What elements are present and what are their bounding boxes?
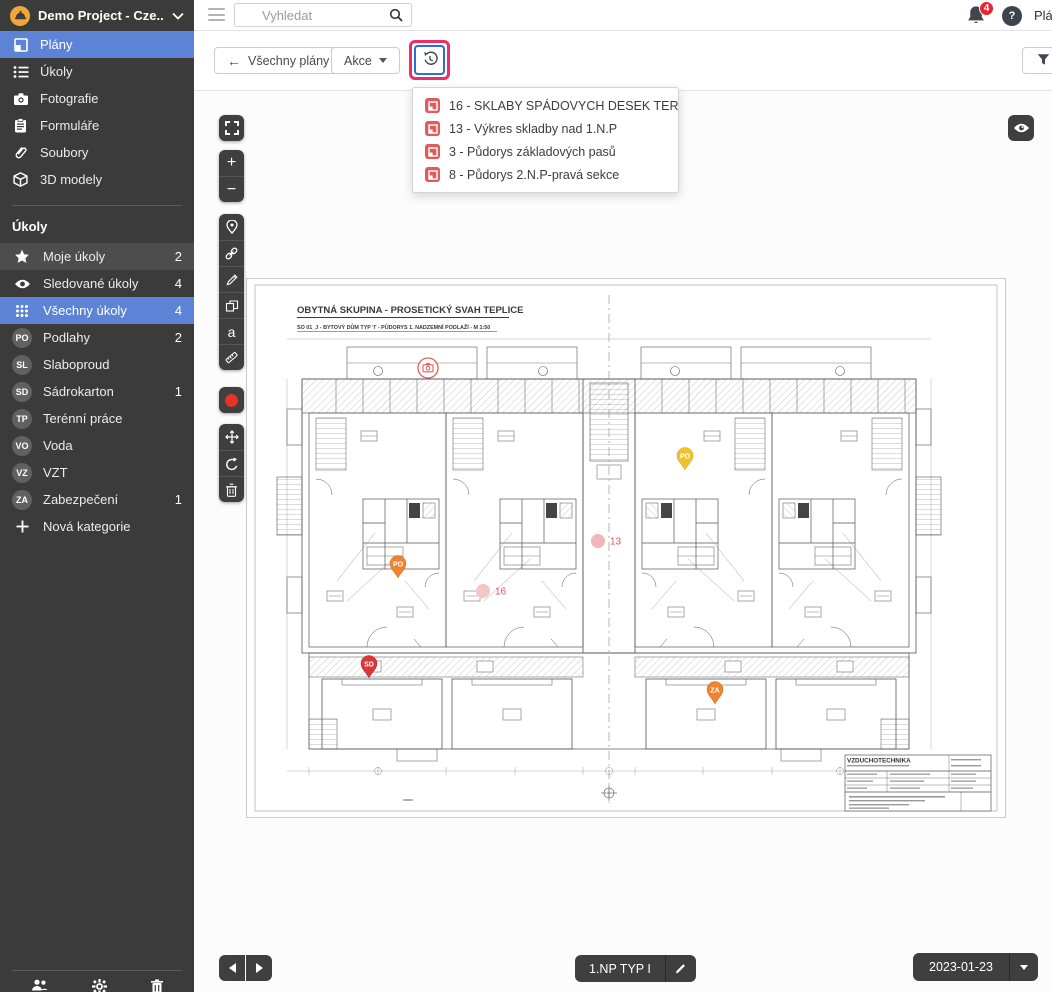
actions-dropdown-button[interactable]: Akce (331, 47, 400, 74)
fullscreen-icon (225, 121, 239, 135)
project-name: Demo Project - Cze... (38, 8, 164, 23)
task-pin-po-yellow[interactable]: PO (677, 448, 693, 471)
chevron-down-icon (172, 7, 184, 25)
plan-history-button[interactable] (414, 45, 445, 75)
record-button[interactable] (219, 387, 244, 413)
arrow-right-icon (256, 963, 263, 973)
task-pin-po-orange[interactable]: PO (390, 556, 406, 579)
search-input[interactable] (234, 3, 412, 27)
zoom-out-button[interactable]: − (219, 176, 244, 202)
category-badge: VO (12, 436, 32, 456)
task-count: 1 (175, 384, 182, 399)
titleblock: VZDUCHOTECHNIKA (845, 755, 991, 811)
shapes-icon (225, 299, 239, 313)
plan-name-button[interactable]: 1.NP TYP I (575, 955, 696, 982)
plan-pager (219, 955, 272, 981)
grid-icon (12, 303, 32, 318)
plus-icon: + (227, 155, 236, 171)
rename-pencil-icon[interactable] (666, 962, 696, 975)
category-badge: SL (12, 355, 32, 375)
history-icon (422, 51, 438, 70)
category-badge: SD (12, 382, 32, 402)
ruler-icon (224, 350, 239, 365)
history-item-8[interactable]: 8 - Půdorys 2.N.P-pravá sekce (413, 163, 678, 186)
sidebar-item-formulare[interactable]: Formuláře (0, 112, 194, 139)
plans-icon (12, 37, 29, 52)
cube-icon (12, 172, 29, 187)
plan-name: 1.NP TYP I (575, 962, 665, 976)
sidebar: Demo Project - Cze... Plány Úkoly Fotogr… (0, 0, 194, 992)
pencil-icon (225, 273, 239, 287)
link-icon (224, 246, 239, 261)
top-header: 4 ? Plány (194, 0, 1052, 31)
zoom-group: + − (219, 150, 244, 202)
sidebar-item-voda[interactable]: VO Voda (0, 432, 194, 459)
plan-icon (425, 98, 440, 113)
eye-icon (12, 276, 32, 291)
fullscreen-button[interactable] (219, 115, 244, 141)
eye-icon (1013, 122, 1030, 134)
gear-icon[interactable] (92, 979, 107, 992)
back-to-plans-button[interactable]: ← Všechny plány (214, 47, 342, 74)
category-badge: VZ (12, 463, 32, 483)
svg-text:SD: SD (364, 662, 374, 669)
hamburger-menu-icon[interactable] (208, 8, 225, 21)
sidebar-item-3d-modely[interactable]: 3D modely (0, 166, 194, 193)
plan-toolbar: ← Všechny plány Akce (194, 31, 1052, 91)
annotation-tools-group: a (219, 214, 244, 370)
floorplan-sheet[interactable]: OBYTNÁ SKUPINA - PROSETICKÝ SVAH TEPLICE… (246, 278, 1006, 818)
previous-plan-button[interactable] (219, 955, 245, 981)
users-icon[interactable] (30, 979, 49, 992)
sidebar-item-moje-ukoly[interactable]: Moje úkoly 2 (0, 243, 194, 270)
zoom-in-button[interactable]: + (219, 150, 244, 176)
notification-badge: 4 (979, 1, 994, 16)
pin-tool-button[interactable] (219, 214, 244, 240)
shapes-tool-button[interactable] (219, 292, 244, 318)
task-count: 1 (175, 492, 182, 507)
sidebar-item-fotografie[interactable]: Fotografie (0, 85, 194, 112)
arrow-left-icon (229, 963, 236, 973)
undo-button[interactable] (219, 450, 244, 476)
svg-text:16: 16 (495, 587, 507, 598)
app-logo-icon (10, 6, 30, 26)
record-group (219, 387, 244, 413)
sidebar-item-terenni-prace[interactable]: TP Terénní práce (0, 405, 194, 432)
task-count: 2 (175, 249, 182, 264)
clipboard-icon (12, 118, 29, 133)
plan-icon (425, 144, 440, 159)
task-count: 4 (175, 276, 182, 291)
app-root: Demo Project - Cze... Plány Úkoly Fotogr… (0, 0, 1052, 992)
plan-version-date-button[interactable]: 2023-01-23 (913, 953, 1038, 981)
history-dropdown-menu: 16 - SKLABY SPÁDOVYCH DESEK TERAS… 13 - … (412, 87, 679, 193)
plus-icon (12, 519, 32, 534)
text-a-icon: a (228, 325, 236, 339)
task-count: 2 (175, 330, 182, 345)
record-icon (225, 394, 238, 407)
plan-canvas[interactable]: OBYTNÁ SKUPINA - PROSETICKÝ SVAH TEPLICE… (194, 91, 1052, 992)
filter-funnel-icon (1037, 53, 1050, 69)
plan-version-date: 2023-01-23 (913, 960, 1009, 974)
task-count: 4 (175, 303, 182, 318)
topbar-right-text[interactable]: Plány (1034, 8, 1052, 23)
project-switcher[interactable]: Demo Project - Cze... (0, 0, 194, 31)
svg-text:PO: PO (680, 454, 691, 461)
sidebar-item-ukoly[interactable]: Úkoly (0, 58, 194, 85)
sidebar-item-soubory[interactable]: Soubory (0, 139, 194, 166)
sidebar-item-sadrokarton[interactable]: SD Sádrokarton 1 (0, 378, 194, 405)
task-pin-za-orange[interactable]: ZA (707, 682, 723, 705)
trash-icon (225, 483, 238, 497)
category-badge: PO (12, 328, 32, 348)
caret-down-icon[interactable] (1010, 965, 1038, 970)
svg-text:13: 13 (610, 537, 622, 548)
plan-icon (425, 121, 440, 136)
sidebar-item-plany[interactable]: Plány (0, 31, 194, 58)
history-item-16[interactable]: 16 - SKLABY SPÁDOVYCH DESEK TERAS… (413, 94, 678, 117)
sidebar-item-zabezpeceni[interactable]: ZA Zabezpečení 1 (0, 486, 194, 513)
transform-group (219, 424, 244, 502)
category-badge: TP (12, 409, 32, 429)
text-tool-button[interactable]: a (219, 318, 244, 344)
back-arrow-icon: ← (227, 53, 241, 69)
sidebar-item-slaboproud[interactable]: SL Slaboproud (0, 351, 194, 378)
next-plan-button[interactable] (246, 955, 272, 981)
paperclip-icon (12, 145, 29, 160)
measure-tool-button[interactable] (219, 344, 244, 370)
delete-button[interactable] (219, 476, 244, 502)
search-icon[interactable] (389, 8, 403, 27)
history-item-3[interactable]: 3 - Půdorys základových pasů (413, 140, 678, 163)
tasks-section-title: Úkoly (0, 206, 194, 243)
caret-down-icon (379, 58, 387, 63)
sidebar-item-nova-kategorie[interactable]: Nová kategorie (0, 513, 194, 540)
location-pin-icon (225, 220, 239, 234)
notifications-bell-icon[interactable]: 4 (966, 5, 988, 27)
category-badge: ZA (12, 490, 32, 510)
visibility-button[interactable] (1008, 115, 1034, 141)
camera-marker[interactable] (418, 358, 438, 378)
task-list-icon (12, 64, 29, 79)
move-icon (225, 430, 239, 444)
plan-subtitle: SO 01_J - BYTOVÝ DŮM TYP 'I' - PŮDORYS 1… (297, 323, 490, 331)
sidebar-item-vsechny-ukoly[interactable]: Všechny úkoly 4 (0, 297, 194, 324)
sidebar-item-vzt[interactable]: VZ VZT (0, 459, 194, 486)
titleblock-heading: VZDUCHOTECHNIKA (847, 758, 911, 765)
svg-text:ZA: ZA (710, 688, 719, 695)
plan-title: OBYTNÁ SKUPINA - PROSETICKÝ SVAH TEPLICE (297, 304, 523, 316)
link-tool-button[interactable] (219, 240, 244, 266)
sidebar-item-sledovane-ukoly[interactable]: Sledované úkoly 4 (0, 270, 194, 297)
task-dot-16[interactable]: 16 (476, 584, 507, 598)
trash-icon[interactable] (150, 979, 164, 992)
pencil-tool-button[interactable] (219, 266, 244, 292)
search-box (234, 3, 412, 27)
sidebar-footer (0, 958, 194, 992)
task-dot-13[interactable]: 13 (591, 534, 622, 548)
svg-text:PO: PO (393, 562, 404, 569)
history-item-13[interactable]: 13 - Výkres skladby nad 1.N.P (413, 117, 678, 140)
minus-icon: − (227, 182, 236, 198)
star-icon (12, 249, 32, 264)
help-icon[interactable]: ? (1002, 6, 1022, 26)
sidebar-item-podlahy[interactable]: PO Podlahy 2 (0, 324, 194, 351)
fullscreen-group (219, 115, 244, 141)
floorplan-drawing: OBYTNÁ SKUPINA - PROSETICKÝ SVAH TEPLICE… (247, 279, 1005, 817)
plan-icon (425, 167, 440, 182)
undo-icon (225, 457, 239, 471)
camera-icon (12, 91, 29, 106)
filter-button[interactable]: Filtr (1022, 47, 1052, 74)
move-button[interactable] (219, 424, 244, 450)
